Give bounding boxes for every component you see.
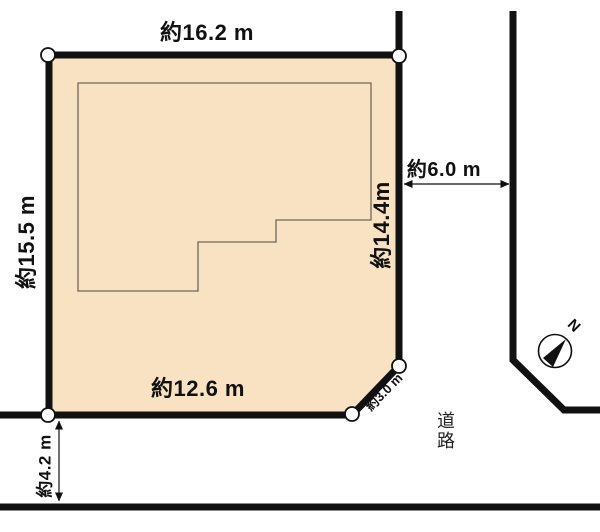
compass <box>539 335 572 368</box>
dimension-label-road-east: 約6.0 m <box>407 160 481 180</box>
corner-marker-ne <box>392 49 406 63</box>
dimension-label-right: 約14.4m <box>371 181 393 268</box>
road-label: 道路 <box>436 411 454 451</box>
corner-marker-nw <box>41 48 55 62</box>
corner-marker-s <box>345 407 359 421</box>
corner-marker-sw <box>41 408 55 422</box>
site-plan-canvas: 約16.2 m 約15.5 m 約14.4m 約12.6 m 約3.0 m 約6… <box>0 0 600 532</box>
dimension-label-road-south: 約4.2 m <box>37 434 54 497</box>
lot-boundary <box>49 55 399 415</box>
dimension-label-bottom: 約12.6 m <box>151 378 245 400</box>
dimension-label-left: 約15.5 m <box>16 195 38 289</box>
site-plan-drawing <box>0 0 600 532</box>
dimension-label-top: 約16.2 m <box>160 22 254 44</box>
